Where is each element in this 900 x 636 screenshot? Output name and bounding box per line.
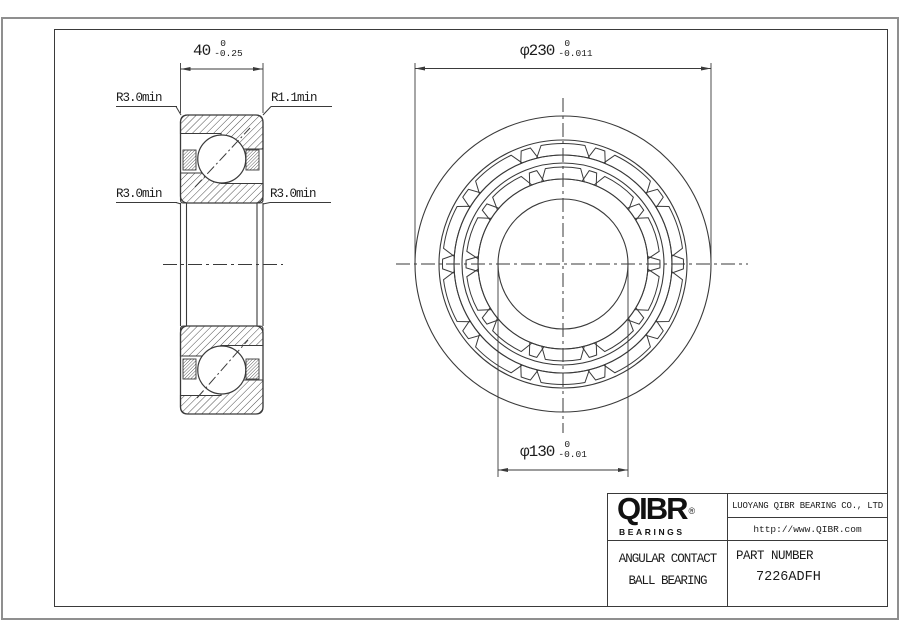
dimension-bore-tolerance: 0 -0.01 bbox=[558, 440, 587, 460]
dimension-width-tolerance: 0 -0.25 bbox=[214, 39, 243, 59]
product-name-line2: BALL BEARING bbox=[608, 571, 727, 593]
part-number-label: PART NUMBER bbox=[736, 549, 887, 563]
dimension-width-value: 40 bbox=[193, 42, 210, 60]
company-name: LUOYANG QIBR BEARING CO., LTD bbox=[728, 494, 887, 518]
product-name-line1: ANGULAR CONTACT bbox=[608, 549, 727, 571]
product-name-cell: ANGULAR CONTACT BALL BEARING bbox=[608, 541, 728, 606]
brand-logo-subtext: BEARINGS bbox=[619, 527, 727, 537]
radius-label-top-left: R3.0min bbox=[116, 91, 177, 107]
dimension-bore-value: φ130 bbox=[520, 443, 554, 461]
linework-group bbox=[163, 63, 748, 477]
title-block-top-row: QIBR ® BEARINGS LUOYANG QIBR BEARING CO.… bbox=[608, 494, 887, 541]
title-block-bottom-row: ANGULAR CONTACT BALL BEARING PART NUMBER… bbox=[608, 541, 887, 606]
part-number-cell: PART NUMBER 7226ADFH bbox=[728, 541, 887, 606]
dimension-outer-diameter: φ230 0 -0.011 bbox=[520, 42, 593, 60]
radius-label-top-right: R1.1min bbox=[271, 91, 332, 107]
brand-logo: QIBR bbox=[617, 496, 687, 522]
logo-cell: QIBR ® BEARINGS bbox=[608, 494, 728, 540]
company-website: http://www.QIBR.com bbox=[728, 518, 887, 540]
title-block: QIBR ® BEARINGS LUOYANG QIBR BEARING CO.… bbox=[607, 493, 888, 607]
dimension-width: 40 0 -0.25 bbox=[193, 42, 243, 60]
radius-label-bottom-left: R3.0min bbox=[116, 187, 177, 203]
dimension-od-tolerance: 0 -0.011 bbox=[558, 39, 592, 59]
part-number-value: 7226ADFH bbox=[736, 570, 887, 585]
radius-label-bottom-right: R3.0min bbox=[270, 187, 331, 203]
dimension-bore-diameter: φ130 0 -0.01 bbox=[520, 443, 587, 461]
company-cell: LUOYANG QIBR BEARING CO., LTD http://www… bbox=[728, 494, 887, 540]
registered-trademark-icon: ® bbox=[689, 498, 696, 524]
dimension-od-value: φ230 bbox=[520, 42, 554, 60]
